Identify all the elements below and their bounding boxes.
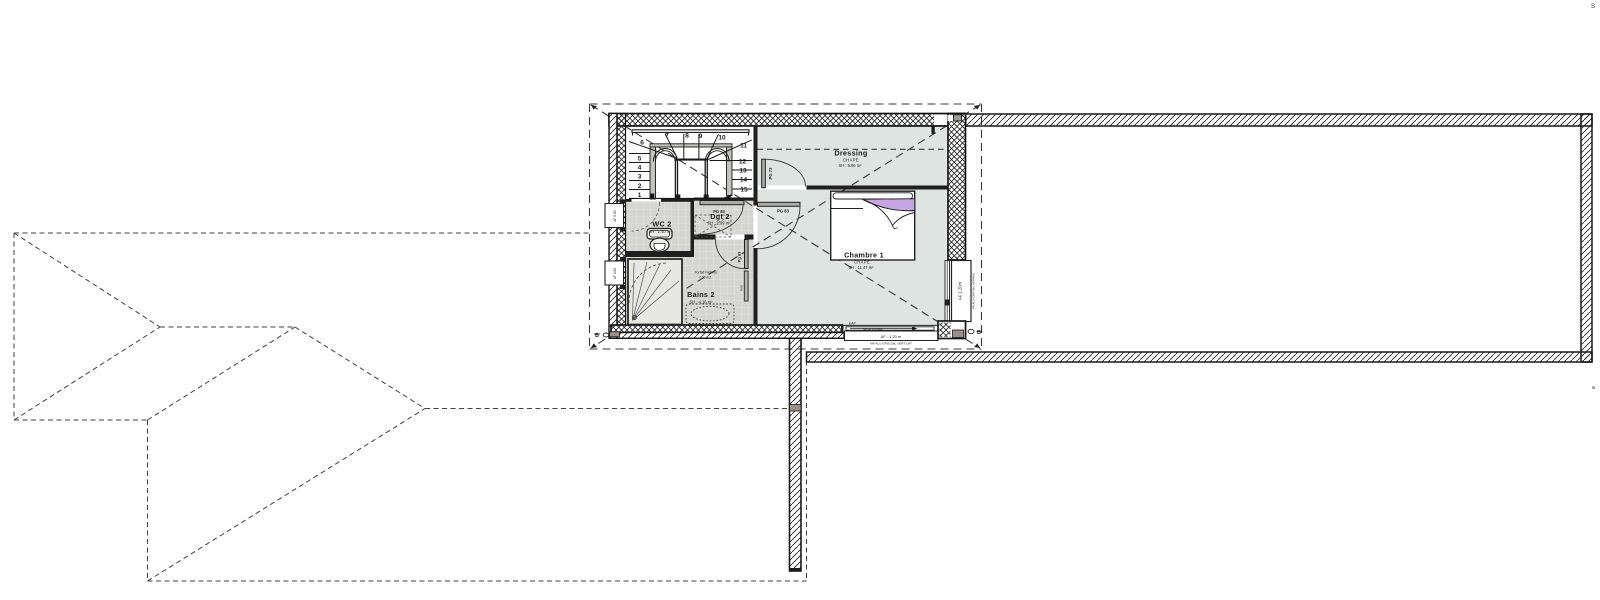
svg-text:NR ALU GRIS DbL VERT LHT: NR ALU GRIS DbL VERT LHT <box>870 342 912 346</box>
svg-text:2: 2 <box>638 183 642 190</box>
svg-text:AF 0.60: AF 0.60 <box>613 210 617 221</box>
svg-text:B: B <box>977 330 981 336</box>
svg-text:8: 8 <box>685 133 689 140</box>
svg-text:9: 9 <box>699 133 703 140</box>
svg-text:PG 73: PG 73 <box>768 167 773 180</box>
svg-text:RAD: RAD <box>740 285 744 291</box>
svg-text:AF 0.60: AF 0.60 <box>613 268 617 279</box>
svg-text:SH : 1.40 m²: SH : 1.40 m² <box>649 229 673 234</box>
svg-text:Bains 2: Bains 2 <box>687 290 715 299</box>
svg-text:7.00 m2: 7.00 m2 <box>699 276 711 280</box>
svg-text:PG 83: PG 83 <box>777 209 790 214</box>
svg-text:Pg 83: Pg 83 <box>737 251 742 262</box>
svg-text:Forfait Faïence: Forfait Faïence <box>695 271 718 275</box>
svg-text:Dressing: Dressing <box>834 149 867 158</box>
svg-text:15: 15 <box>740 187 748 194</box>
svg-text:S: S <box>1591 4 1595 10</box>
svg-text:CHAPE: CHAPE <box>854 260 870 265</box>
svg-text:5: 5 <box>638 156 642 163</box>
svg-text:WC 2: WC 2 <box>652 220 671 229</box>
svg-text:SH : 11.47 m²: SH : 11.47 m² <box>849 265 875 270</box>
svg-text:12: 12 <box>739 159 747 166</box>
svg-text:7: 7 <box>665 133 669 140</box>
svg-text:a: a <box>1592 385 1595 391</box>
svg-text:SH : 1.99 m²: SH : 1.99 m² <box>708 221 732 226</box>
svg-text:VR ALU GRIS DbL VERROU: VR ALU GRIS DbL VERROU <box>972 273 976 309</box>
svg-text:1: 1 <box>638 192 642 199</box>
svg-text:AF : 1.20 m: AF : 1.20 m <box>881 334 902 339</box>
svg-text:AF 1.20m: AF 1.20m <box>958 281 963 300</box>
svg-text:PG 83: PG 83 <box>713 209 725 214</box>
svg-text:6: 6 <box>640 140 644 147</box>
svg-text:SH : 4.16 m²: SH : 4.16 m² <box>690 299 714 304</box>
svg-text:14: 14 <box>740 177 748 184</box>
svg-text:Chambre 1: Chambre 1 <box>844 251 884 260</box>
svg-text:SH : 5.06 m²: SH : 5.06 m² <box>839 163 863 168</box>
svg-text:3: 3 <box>638 174 642 181</box>
svg-text:10: 10 <box>718 135 726 142</box>
svg-text:CHAPE: CHAPE <box>843 158 859 163</box>
svg-text:13: 13 <box>739 168 747 175</box>
svg-text:EAP: EAP <box>849 321 857 325</box>
svg-text:4: 4 <box>638 165 642 172</box>
svg-text:11: 11 <box>740 143 747 150</box>
